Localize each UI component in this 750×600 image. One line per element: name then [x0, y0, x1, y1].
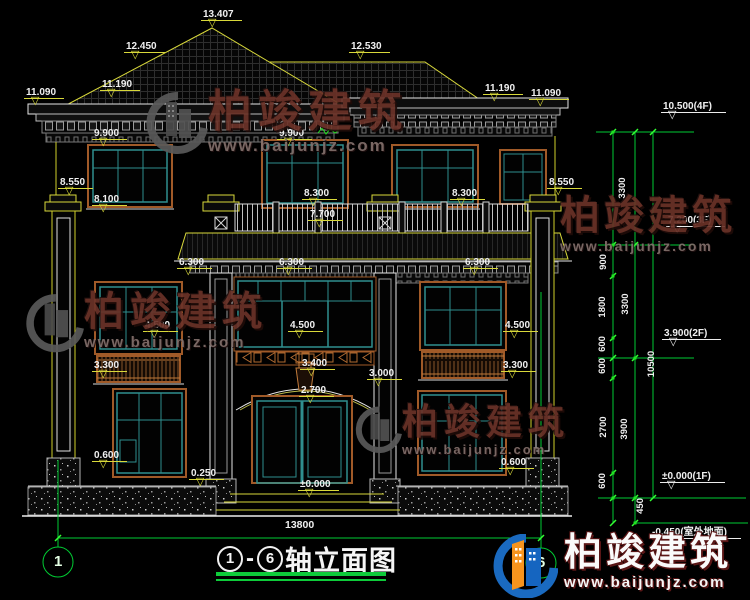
- axis-start-bubble: 1: [217, 546, 243, 572]
- brand-logo-icon: [486, 534, 558, 598]
- canopy-roof: [174, 233, 572, 283]
- brand-logo: 柏竣建筑 www.baijunjz.com: [486, 534, 732, 598]
- title-underline-thick: [216, 572, 386, 576]
- axis-end-bubble: 6: [257, 546, 283, 572]
- brand-name: 柏竣建筑: [564, 534, 732, 574]
- balcony-railing: [235, 202, 528, 233]
- title-dash: -: [246, 545, 254, 573]
- title-underline-thin: [216, 579, 386, 581]
- entry-arch-door: [236, 362, 374, 483]
- plinth-steps: [22, 486, 572, 516]
- third-floor-windows: [86, 140, 546, 209]
- cad-canvas: 柏竣建筑 www.baijunjz.com 柏竣建筑 www.baijunjz.…: [0, 0, 750, 600]
- brand-url: www.baijunjz.com: [564, 574, 732, 591]
- elevation-drawing: [0, 0, 750, 600]
